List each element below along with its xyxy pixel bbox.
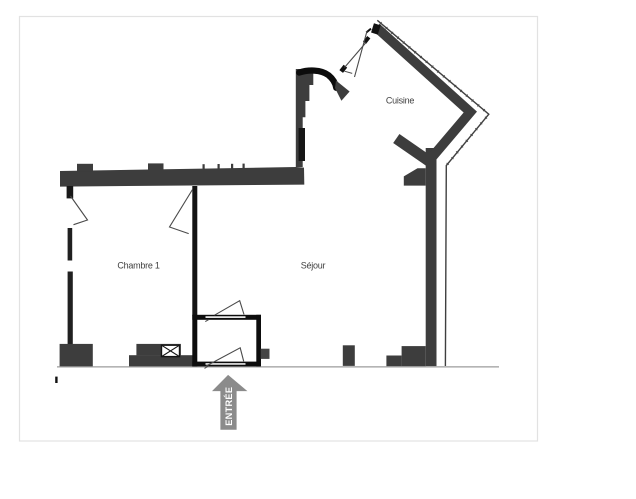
svg-text:Chambre 1: Chambre 1 — [117, 261, 160, 271]
svg-text:ENTRÉE: ENTRÉE — [223, 387, 234, 426]
svg-text:Cuisine: Cuisine — [386, 96, 415, 106]
svg-text:Séjour: Séjour — [301, 260, 326, 270]
